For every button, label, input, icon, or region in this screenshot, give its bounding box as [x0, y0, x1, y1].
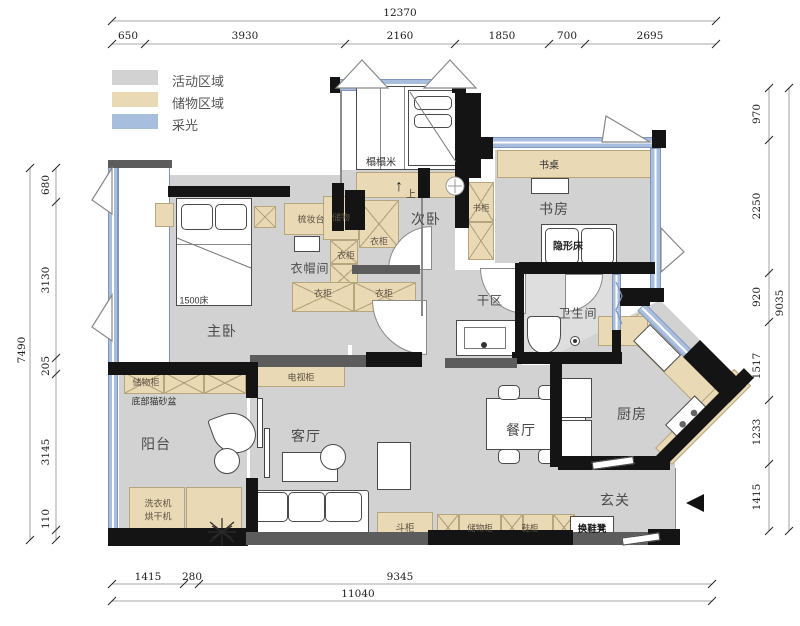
- room-label-dry-area: 干区: [477, 292, 503, 309]
- label-shoe-bench: 换鞋凳: [578, 521, 607, 535]
- dim-left-seg-1: 3130: [40, 267, 52, 294]
- label-bed-1500: 1500床: [179, 294, 208, 307]
- label-tatami: 榻榻米: [366, 154, 396, 169]
- label-bookcase: 书柜: [472, 202, 489, 214]
- room-label-foyer: 玄关: [600, 490, 630, 510]
- label-wardrobe-1: 衣柜: [370, 235, 388, 248]
- label-dryer: 烘干机: [144, 510, 171, 523]
- dim-bottom-total: 11040: [341, 588, 374, 600]
- dim-left-seg-3: 3145: [40, 439, 52, 466]
- dim-right-seg-4: 1233: [751, 419, 763, 446]
- label-shoe-cabinet: 鞋柜: [521, 522, 538, 534]
- dim-top-seg-1: 3930: [232, 30, 259, 42]
- dim-right-seg-5: 1415: [751, 484, 763, 511]
- room-label-bathroom: 卫生间: [558, 305, 597, 322]
- floorplan-canvas: 活动区域 储物区域 采光 主卧 次卧 书房 衣帽间 干区 卫生间 厨房 餐厅 客…: [0, 0, 800, 626]
- legend-activity-label: 活动区域: [172, 71, 224, 90]
- label-chest-drawers: 斗柜: [395, 520, 414, 534]
- label-cloak-storage: 储物: [332, 211, 350, 224]
- label-hidden-bed: 隐形床: [553, 238, 583, 253]
- dim-left-total: 7490: [16, 337, 28, 364]
- legend-storage-label: 储物区域: [172, 93, 224, 112]
- room-label-dining: 餐厅: [506, 420, 536, 440]
- dim-right-seg-3: 1517: [751, 353, 763, 380]
- dim-top-seg-2: 2160: [387, 30, 414, 42]
- label-tv-cabinet: 电视柜: [287, 371, 314, 384]
- label-washer: 洗衣机: [144, 497, 171, 510]
- label-entry-storage: 储物柜: [467, 522, 493, 534]
- label-wardrobe-2: 衣柜: [337, 249, 355, 262]
- label-desk: 书桌: [539, 157, 559, 172]
- label-dressing-table: 梳妆台: [297, 213, 324, 226]
- room-label-kitchen: 厨房: [617, 404, 647, 424]
- label-cat-litter: 底部猫砂盆: [131, 395, 176, 408]
- dim-bottom-seg-2: 9345: [387, 571, 414, 583]
- label-balcony-cabinet: 储物柜: [132, 376, 159, 389]
- room-label-second: 次卧: [411, 209, 441, 229]
- dim-top-seg-3: 1850: [489, 30, 516, 42]
- dim-right-seg-2: 920: [751, 287, 763, 307]
- room-label-balcony: 阳台: [141, 434, 171, 454]
- dim-right-seg-1: 2250: [751, 193, 763, 220]
- room-label-cloakroom: 衣帽间: [290, 260, 329, 277]
- dim-right-seg-0: 970: [751, 104, 763, 124]
- up-arrow-icon: ↑: [395, 178, 403, 196]
- dim-bottom-seg-1: 280: [182, 571, 202, 583]
- room-label-living: 客厅: [291, 426, 321, 446]
- dim-left-seg-0: 680: [40, 175, 52, 195]
- dim-top-seg-5: 2695: [637, 30, 664, 42]
- dim-top-total: 12370: [383, 7, 416, 19]
- label-wardrobe-4: 衣柜: [375, 287, 393, 300]
- dim-top-seg-0: 650: [118, 30, 138, 42]
- dim-right-total: 9035: [774, 290, 786, 317]
- room-label-study: 书房: [539, 199, 569, 219]
- legend-daylight-label: 采光: [172, 115, 198, 134]
- dim-bottom-seg-0: 1415: [135, 571, 162, 583]
- label-stairs-up: 上: [406, 186, 416, 201]
- dim-top-seg-4: 700: [557, 30, 577, 42]
- label-wardrobe-3: 衣柜: [314, 287, 332, 300]
- dim-left-seg-2: 205: [40, 356, 52, 376]
- dim-left-seg-4: 110: [40, 509, 52, 529]
- room-label-master: 主卧: [207, 321, 237, 341]
